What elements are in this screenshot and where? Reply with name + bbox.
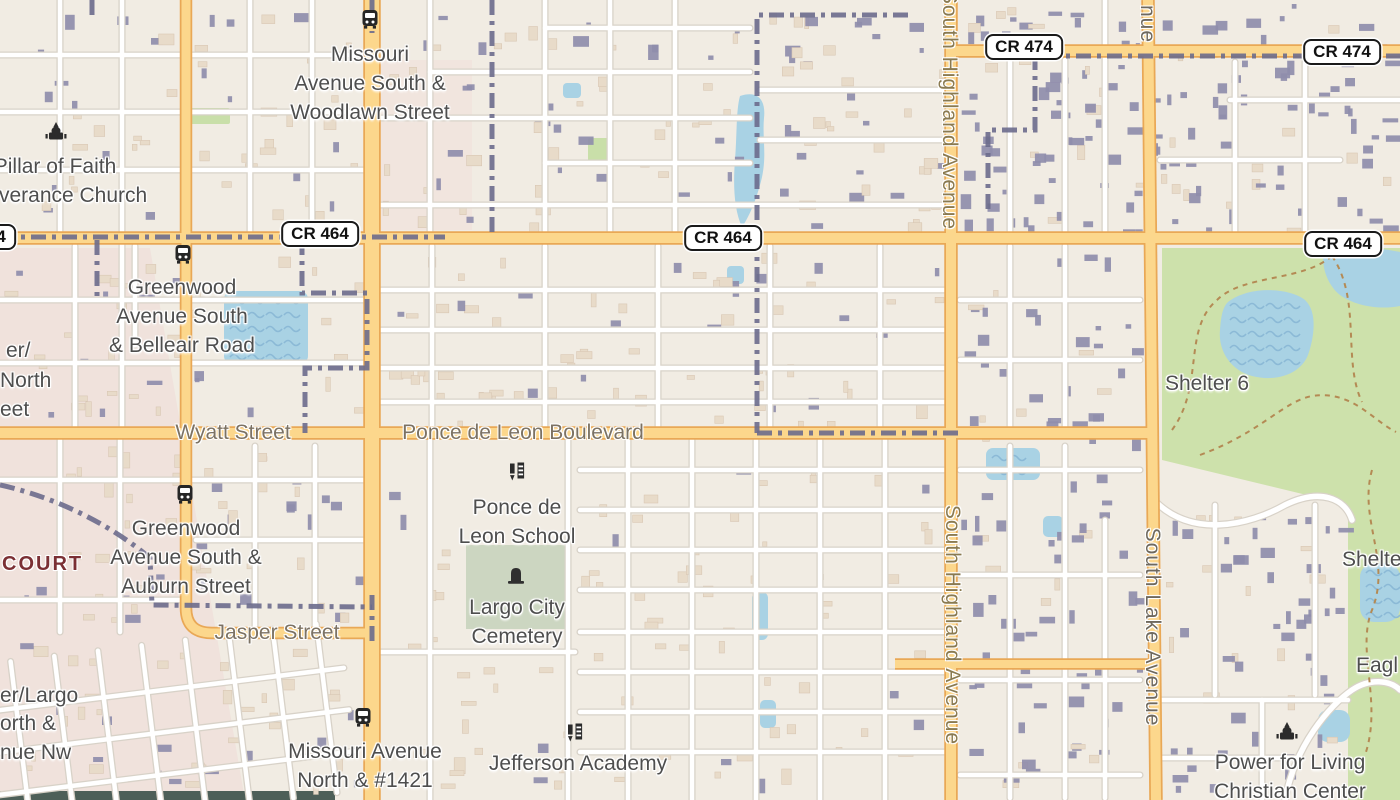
- cemetery-icon[interactable]: [505, 566, 527, 591]
- street-map[interactable]: CR 464CR 464CR 464CR 464CR 474CR 474Wyat…: [0, 0, 1400, 800]
- route-shield: CR 464: [1304, 231, 1382, 257]
- road-name-label: Ponce de Leon Boulevard: [402, 421, 644, 445]
- edge-partial-label: er/: [6, 336, 31, 365]
- bus-stop-icon[interactable]: [359, 9, 381, 36]
- greenwood-ave-s-belleair-stop-label: GreenwoodAvenue South& Belleair Road: [109, 273, 255, 360]
- missouri-ave-n-1421-stop-label: Missouri AvenueNorth & #1421: [288, 737, 442, 795]
- road-name-label: South Lake Avenue: [1140, 528, 1164, 727]
- road-name-label: nue: [1135, 5, 1159, 43]
- road-name-label: Wyatt Street: [175, 421, 290, 445]
- power-for-living-center-label: Power for LivingChristian Center: [1214, 748, 1366, 800]
- ponce-de-leon-school-label: Ponce deLeon School: [459, 493, 576, 551]
- edge-partial-label: er/Largo: [0, 681, 78, 710]
- route-shield: CR 474: [1303, 39, 1381, 65]
- missouri-ave-s-woodlawn-st-stop-label: MissouriAvenue South &Woodlawn Street: [290, 40, 450, 127]
- bus-stop-icon[interactable]: [174, 484, 196, 511]
- edge-partial-label: eet: [0, 395, 29, 424]
- label-overlay: CR 464CR 464CR 464CR 464CR 474CR 474Wyat…: [0, 0, 1400, 800]
- edge-partial-label: orth &: [0, 709, 56, 738]
- school-icon[interactable]: [507, 462, 527, 487]
- route-shield: CR 464: [0, 224, 16, 250]
- district-label: COURT: [2, 553, 83, 576]
- school-icon[interactable]: [565, 723, 585, 748]
- road-name-label: South Highland Avenue: [937, 0, 961, 230]
- road-name-label: Jasper Street: [215, 621, 340, 645]
- bus-stop-icon[interactable]: [172, 244, 194, 271]
- jefferson-academy-label: Jefferson Academy: [489, 749, 667, 778]
- edge-partial-label: Eagl: [1356, 651, 1398, 680]
- largo-city-cemetery-label: Largo CityCemetery: [469, 593, 565, 651]
- church-icon[interactable]: [1275, 722, 1299, 747]
- route-shield: CR 464: [684, 225, 762, 251]
- bus-stop-icon[interactable]: [352, 707, 374, 734]
- shelter-6-label: Shelter 6: [1165, 369, 1249, 398]
- road-name-label: South Highland Avenue: [940, 505, 964, 745]
- edge-partial-label: nue Nw: [0, 738, 71, 767]
- route-shield: CR 464: [281, 221, 359, 247]
- church-icon[interactable]: [44, 122, 68, 147]
- route-shield: CR 474: [985, 34, 1063, 60]
- greenwood-ave-s-auburn-stop-label: GreenwoodAvenue South &Auburn Street: [110, 514, 261, 601]
- edge-partial-label: North: [0, 366, 51, 395]
- pillar-of-faith-church-label: Pillar of FaithDeliverance Church: [0, 152, 147, 210]
- edge-partial-label: Shelte: [1342, 545, 1400, 574]
